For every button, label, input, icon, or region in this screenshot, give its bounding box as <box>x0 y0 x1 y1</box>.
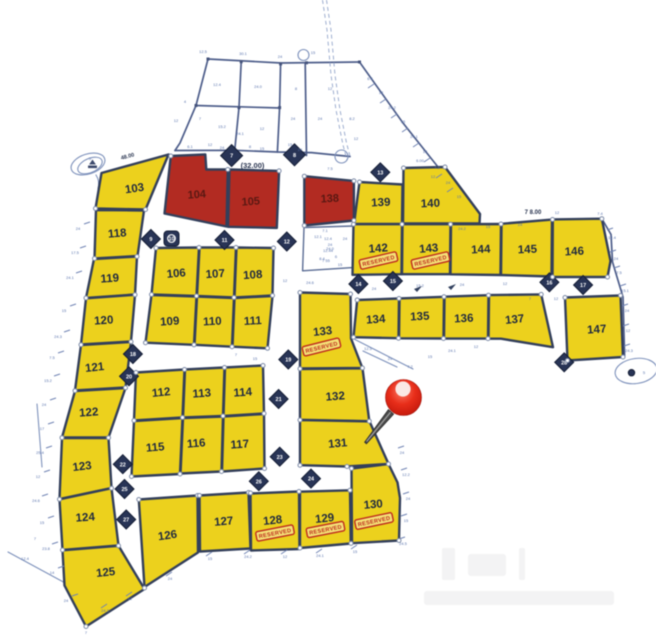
svg-text:24: 24 <box>446 180 451 185</box>
svg-text:123: 123 <box>72 460 93 474</box>
svg-text:114: 114 <box>233 386 253 399</box>
svg-text:(32.00): (32.00) <box>241 161 265 170</box>
svg-text:25: 25 <box>121 487 127 493</box>
svg-text:24.1: 24.1 <box>448 348 457 353</box>
svg-text:11: 11 <box>222 238 228 244</box>
svg-text:15: 15 <box>208 556 213 561</box>
svg-text:15: 15 <box>404 518 409 523</box>
svg-text:24: 24 <box>278 54 283 59</box>
svg-text:145: 145 <box>518 244 538 257</box>
svg-text:135: 135 <box>410 310 430 323</box>
svg-text:24.1: 24.1 <box>66 275 75 280</box>
svg-text:24: 24 <box>518 222 523 227</box>
svg-text:24: 24 <box>298 147 303 152</box>
svg-text:15: 15 <box>338 262 343 267</box>
svg-text:12: 12 <box>431 174 436 179</box>
svg-text:7.5: 7.5 <box>327 166 333 171</box>
svg-text:12.5: 12.5 <box>199 49 208 54</box>
svg-text:8: 8 <box>293 153 296 159</box>
svg-text:132: 132 <box>325 390 345 403</box>
svg-text:131: 131 <box>328 437 349 451</box>
svg-text:15: 15 <box>401 119 406 124</box>
svg-text:146: 146 <box>564 246 584 259</box>
svg-text:24: 24 <box>400 450 405 455</box>
svg-text:14: 14 <box>355 282 362 288</box>
svg-text:121: 121 <box>85 361 106 375</box>
svg-text:112: 112 <box>151 386 171 400</box>
svg-text:6.1: 6.1 <box>187 144 193 149</box>
svg-text:12: 12 <box>354 136 359 141</box>
svg-text:12: 12 <box>283 554 288 559</box>
svg-text:24.0: 24.0 <box>254 84 263 89</box>
svg-text:137: 137 <box>505 313 525 327</box>
svg-text:12.1: 12.1 <box>314 234 323 239</box>
svg-text:18: 18 <box>130 352 136 358</box>
svg-text:110: 110 <box>203 316 222 329</box>
svg-text:24: 24 <box>42 402 47 407</box>
svg-text:24: 24 <box>460 282 465 287</box>
svg-text:15: 15 <box>390 279 396 285</box>
svg-text:124: 124 <box>75 511 96 524</box>
svg-text:15: 15 <box>311 50 316 55</box>
svg-text:115: 115 <box>145 441 165 455</box>
svg-text:127: 127 <box>214 515 234 529</box>
svg-text:7 55: 7 55 <box>322 258 331 263</box>
svg-text:7.4: 7.4 <box>597 211 603 216</box>
svg-text:106: 106 <box>166 267 186 281</box>
svg-text:24.3: 24.3 <box>101 608 110 613</box>
svg-text:17.5: 17.5 <box>71 250 80 255</box>
svg-text:12.4: 12.4 <box>213 82 222 87</box>
svg-text:12: 12 <box>379 90 384 95</box>
svg-text:24: 24 <box>625 308 630 313</box>
svg-text:147: 147 <box>587 323 607 336</box>
svg-text:12: 12 <box>626 328 631 333</box>
svg-text:23.8: 23.8 <box>42 546 51 551</box>
svg-text:12: 12 <box>260 126 265 131</box>
svg-text:15: 15 <box>353 549 358 554</box>
svg-text:12: 12 <box>284 240 290 246</box>
svg-text:24: 24 <box>76 226 81 231</box>
svg-text:12: 12 <box>128 596 133 601</box>
svg-text:128: 128 <box>263 514 284 528</box>
svg-text:27: 27 <box>123 518 129 524</box>
svg-text:30.1: 30.1 <box>239 51 248 56</box>
svg-text:24.1: 24.1 <box>410 134 419 139</box>
svg-text:7.1: 7.1 <box>322 228 328 233</box>
svg-text:16: 16 <box>546 280 552 286</box>
svg-text:12: 12 <box>423 149 428 154</box>
svg-text:109: 109 <box>160 315 180 328</box>
svg-text:15: 15 <box>253 356 258 361</box>
svg-text:7: 7 <box>230 154 233 160</box>
svg-text:12.4: 12.4 <box>324 236 333 241</box>
svg-text:24.2: 24.2 <box>388 105 397 110</box>
svg-text:140: 140 <box>421 198 441 211</box>
svg-text:120: 120 <box>94 314 114 327</box>
svg-text:24.0: 24.0 <box>326 246 335 251</box>
svg-text:107: 107 <box>205 268 225 281</box>
svg-text:13: 13 <box>377 170 383 176</box>
svg-text:12: 12 <box>328 86 333 91</box>
svg-text:21: 21 <box>276 397 282 403</box>
svg-text:25.4: 25.4 <box>36 450 45 455</box>
svg-text:138: 138 <box>320 193 339 206</box>
svg-text:108: 108 <box>243 269 264 282</box>
svg-text:116: 116 <box>186 437 206 451</box>
svg-text:113: 113 <box>192 387 211 400</box>
svg-text:7.2: 7.2 <box>434 165 440 170</box>
svg-text:15: 15 <box>260 146 265 151</box>
svg-text:15: 15 <box>62 308 67 313</box>
svg-text:15: 15 <box>288 142 293 147</box>
svg-text:12: 12 <box>283 278 288 283</box>
svg-text:24: 24 <box>220 145 225 150</box>
svg-text:133: 133 <box>313 325 333 339</box>
svg-text:24.1: 24.1 <box>236 131 245 136</box>
svg-text:22: 22 <box>120 462 126 468</box>
svg-text:24: 24 <box>343 236 348 241</box>
svg-text:20: 20 <box>126 374 132 380</box>
svg-text:134: 134 <box>366 313 387 326</box>
svg-text:12: 12 <box>503 281 508 286</box>
svg-text:6.4: 6.4 <box>367 76 373 81</box>
svg-text:136: 136 <box>454 313 474 326</box>
svg-text:23: 23 <box>277 455 283 461</box>
svg-text:24: 24 <box>168 576 173 581</box>
svg-text:15: 15 <box>40 520 45 525</box>
svg-text:12: 12 <box>174 118 179 123</box>
svg-text:15.2: 15.2 <box>44 378 53 383</box>
svg-text:24: 24 <box>372 286 377 291</box>
svg-text:119: 119 <box>100 272 119 285</box>
svg-text:15: 15 <box>486 224 491 229</box>
svg-text:24: 24 <box>64 598 69 603</box>
svg-text:17: 17 <box>40 426 45 431</box>
svg-text:24.2: 24.2 <box>458 226 467 231</box>
svg-text:12.4: 12.4 <box>21 556 30 561</box>
svg-text:24.6: 24.6 <box>306 280 315 285</box>
svg-text:15.1: 15.1 <box>621 288 630 293</box>
svg-text:12: 12 <box>208 142 213 147</box>
svg-text:14: 14 <box>50 570 55 575</box>
svg-text:15: 15 <box>428 354 433 359</box>
svg-text:24: 24 <box>308 477 315 483</box>
svg-text:26: 26 <box>256 479 262 485</box>
svg-text:7 8.00: 7 8.00 <box>525 210 542 216</box>
svg-text:24.3: 24.3 <box>54 334 63 339</box>
svg-text:17: 17 <box>580 283 586 289</box>
svg-text:6.00: 6.00 <box>416 158 425 163</box>
svg-text:7.5: 7.5 <box>616 270 622 275</box>
svg-text:111: 111 <box>244 315 263 328</box>
svg-text:24: 24 <box>406 496 411 501</box>
svg-text:10: 10 <box>168 237 174 243</box>
svg-text:125: 125 <box>96 566 117 580</box>
svg-text:15.2: 15.2 <box>218 124 227 129</box>
svg-text:15: 15 <box>457 194 462 199</box>
svg-text:12: 12 <box>554 296 559 301</box>
svg-text:122: 122 <box>79 406 99 419</box>
svg-text:24.3: 24.3 <box>625 348 634 353</box>
svg-text:12: 12 <box>555 210 560 215</box>
svg-text:24.6: 24.6 <box>32 498 41 503</box>
svg-text:118: 118 <box>107 227 127 241</box>
svg-text:7.5: 7.5 <box>49 355 55 360</box>
svg-text:144: 144 <box>471 243 491 256</box>
svg-text:104: 104 <box>187 188 207 201</box>
svg-text:24.1: 24.1 <box>316 553 325 558</box>
svg-text:130: 130 <box>363 498 383 512</box>
svg-text:24: 24 <box>318 116 323 121</box>
svg-text:24.2: 24.2 <box>244 554 253 559</box>
svg-text:8.2: 8.2 <box>349 116 355 121</box>
svg-text:117: 117 <box>230 438 249 451</box>
svg-text:12.2: 12.2 <box>402 472 411 477</box>
svg-text:12: 12 <box>474 344 479 349</box>
svg-text:12: 12 <box>36 474 41 479</box>
svg-text:9: 9 <box>149 237 152 243</box>
svg-text:24: 24 <box>291 116 296 121</box>
svg-text:12.4: 12.4 <box>608 235 617 240</box>
svg-text:19: 19 <box>285 358 291 364</box>
svg-text:24: 24 <box>614 256 619 261</box>
svg-text:139: 139 <box>371 197 391 210</box>
svg-text:105: 105 <box>241 195 260 208</box>
